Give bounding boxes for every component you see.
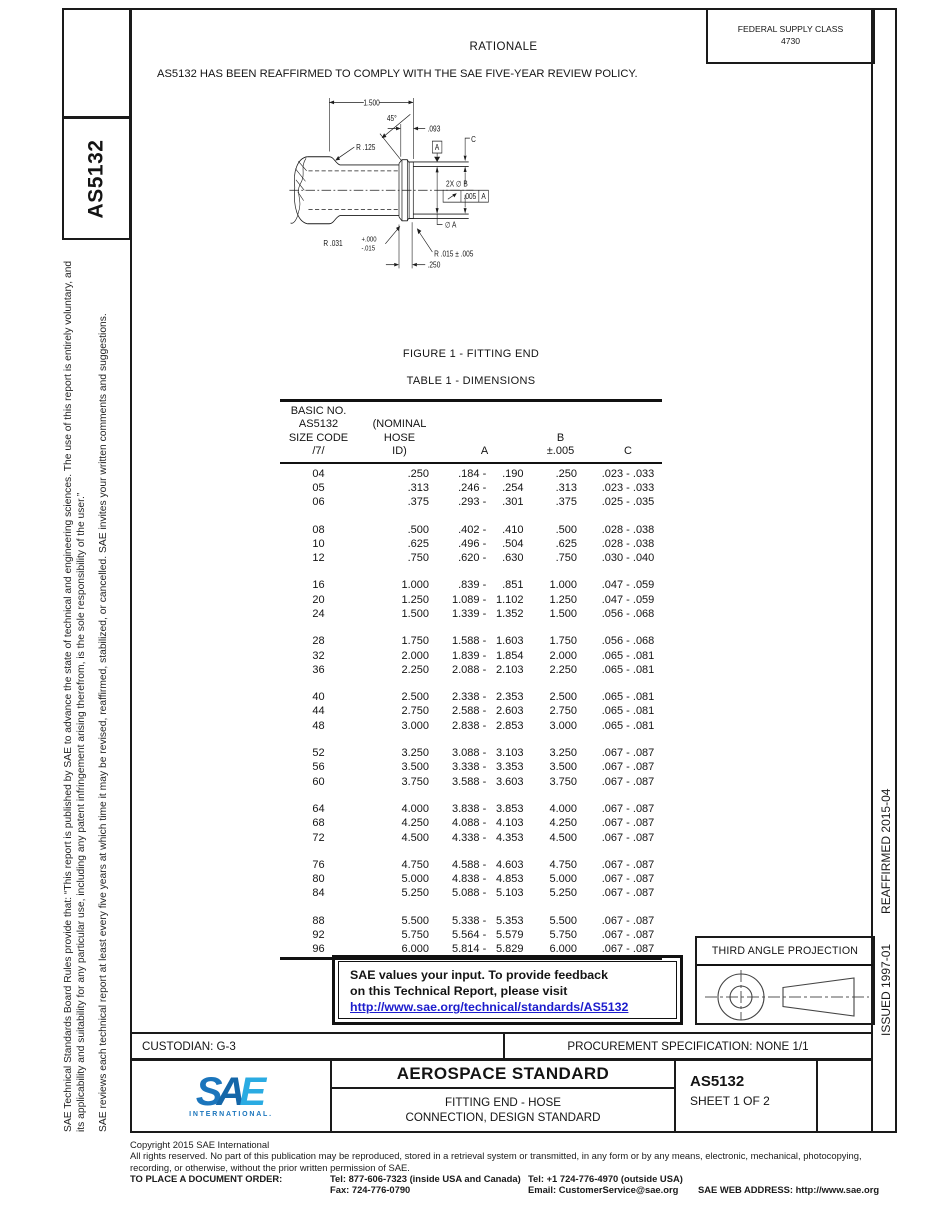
dim-c-label: C [471,134,476,144]
cell-size-code: 88 [280,914,357,928]
cell-size-code: 40 [280,690,357,704]
cell-b: 1.000 [527,578,594,592]
cell-a-range: 3.588-3.603 [442,775,527,789]
dim-250: .250 [428,260,441,270]
cell-c: .067 - .087 [594,775,662,789]
cell-hose-id: 5.500 [357,914,442,928]
cell-c: .025 - .035 [594,495,662,509]
feedback-box: SAE values your input. To provide feedba… [332,955,683,1025]
third-angle-projection-box: THIRD ANGLE PROJECTION [695,936,875,1025]
sae-logo: SAE INTERNATIONAL. [132,1061,332,1131]
cell-a-range: .184-.190 [442,463,527,481]
table-row: 241.5001.339-1.3521.500.056 - .068 [280,607,662,621]
cell-size-code: 52 [280,746,357,760]
cell-hose-id: 4.250 [357,816,442,830]
cell-hose-id: 3.250 [357,746,442,760]
cell-a-range: 2.588-2.603 [442,704,527,718]
cell-hose-id: 5.000 [357,872,442,886]
title-block: SAE INTERNATIONAL. AEROSPACE STANDARD FI… [132,1058,871,1131]
header-c: C [594,401,662,463]
cell-size-code: 72 [280,831,357,845]
table-row: 563.5003.338-3.3533.500.067 - .087 [280,760,662,774]
third-angle-projection-symbol [697,966,873,1022]
cell-size-code: 36 [280,663,357,677]
cell-b: 4.000 [527,802,594,816]
fcf-tolerance: .005 [464,191,477,201]
cell-c: .065 - .081 [594,690,662,704]
cell-size-code: 56 [280,760,357,774]
cell-b: .625 [527,537,594,551]
cell-a-range: .620-.630 [442,551,527,565]
cell-a-range: .839-.851 [442,578,527,592]
order-row-2: Fax: 724-776-0790 Email: CustomerService… [130,1184,920,1195]
document-title-line-1: FITTING END - HOSE [445,1095,561,1110]
cell-hose-id: 1.000 [357,578,442,592]
table-row: 04.250.184-.190.250.023 - .033 [280,463,662,481]
cell-size-code: 92 [280,928,357,942]
title-block-empty-cell [818,1061,871,1131]
sidebar-empty-box [62,8,131,118]
document-page: AS5132 SAE Technical Standards Board Rul… [0,0,950,1211]
cell-a-range: 3.338-3.353 [442,760,527,774]
cell-size-code: 28 [280,634,357,648]
header-a: A [442,401,527,463]
document-title: FITTING END - HOSE CONNECTION, DESIGN ST… [332,1089,674,1131]
cell-hose-id: 1.250 [357,593,442,607]
cell-b: .375 [527,495,594,509]
doc-code-box: AS5132 [62,117,131,240]
left-disclaimer-text: SAE Technical Standards Board Rules prov… [63,254,111,1132]
cell-b: .313 [527,481,594,495]
cell-a-range: 4.338-4.353 [442,831,527,845]
table-row: 845.2505.088-5.1035.250.067 - .087 [280,886,662,900]
cell-b: 1.250 [527,593,594,607]
table-row: 161.000.839-.8511.000.047 - .059 [280,578,662,592]
table-row: 08.500.402-.410.500.028 - .038 [280,523,662,537]
dim-dia-a: ∅ A [445,220,457,230]
cell-c: .028 - .038 [594,537,662,551]
cell-b: 4.750 [527,858,594,872]
cell-a-range: 4.588-4.603 [442,858,527,872]
table-row: 805.0004.838-4.8535.000.067 - .087 [280,872,662,886]
cell-c: .047 - .059 [594,593,662,607]
cell-a-range: 2.088-2.103 [442,663,527,677]
cell-hose-id: .250 [357,463,442,481]
fcf-datum: A [481,191,485,201]
cell-c: .067 - .087 [594,746,662,760]
cell-hose-id: .500 [357,523,442,537]
doc-code-vertical: AS5132 [85,139,109,218]
cell-b: 5.250 [527,886,594,900]
cell-a-range: 1.839-1.854 [442,649,527,663]
cell-size-code: 64 [280,802,357,816]
cell-c: .023 - .033 [594,481,662,495]
sheet-indicator: SHEET 1 OF 2 [690,1094,816,1108]
table-group-spacer [280,677,662,690]
table-row: 684.2504.088-4.1034.250.067 - .087 [280,816,662,830]
feedback-line-1: SAE values your input. To provide feedba… [350,967,676,983]
table-row: 06.375.293-.301.375.025 - .035 [280,495,662,509]
cell-a-range: 2.338-2.353 [442,690,527,704]
cell-hose-id: 4.500 [357,831,442,845]
table-row: 483.0002.838-2.8533.000.065 - .081 [280,719,662,733]
table-group-spacer [280,845,662,858]
feedback-link[interactable]: http://www.sae.org/technical/standards/A… [350,1000,628,1014]
cell-a-range: 2.838-2.853 [442,719,527,733]
dim-r125: R .125 [356,142,375,152]
cell-b: 5.000 [527,872,594,886]
table-row: 10.625.496-.504.625.028 - .038 [280,537,662,551]
cell-size-code: 48 [280,719,357,733]
cell-c: .067 - .087 [594,831,662,845]
dim-r031: R .031 [323,238,342,248]
cell-hose-id: .375 [357,495,442,509]
cell-size-code: 44 [280,704,357,718]
table-row: 05.313.246-.254.313.023 - .033 [280,481,662,495]
disclaimer-paragraph-1: SAE Technical Standards Board Rules prov… [63,254,88,1132]
table-row: 644.0003.838-3.8534.000.067 - .087 [280,802,662,816]
cell-a-range: 1.339-1.352 [442,607,527,621]
feedback-line-2: on this Technical Report, please visit [350,983,676,999]
cell-a-range: 4.088-4.103 [442,816,527,830]
table-row: 442.7502.588-2.6032.750.065 - .081 [280,704,662,718]
cell-size-code: 76 [280,858,357,872]
cell-b: 5.500 [527,914,594,928]
cell-b: 2.500 [527,690,594,704]
table-group-spacer [280,901,662,914]
rationale-statement: AS5132 HAS BEEN REAFFIRMED TO COMPLY WIT… [157,68,638,80]
issued-date: ISSUED 1997-01 [879,944,893,1036]
dim-dia-b: 2X ∅ B [446,179,468,189]
table-row: 322.0001.839-1.8542.000.065 - .081 [280,649,662,663]
table-group-spacer [280,565,662,578]
dim-chamfer-angle: 45° [387,113,397,123]
cell-c: .067 - .087 [594,802,662,816]
cell-hose-id: 3.750 [357,775,442,789]
cell-a-range: 3.088-3.103 [442,746,527,760]
cell-a-range: .293-.301 [442,495,527,509]
copyright-block: Copyright 2015 SAE International All rig… [130,1139,920,1195]
sae-logo-subtitle: INTERNATIONAL. [189,1111,273,1118]
cell-b: 5.750 [527,928,594,942]
cell-c: .067 - .087 [594,858,662,872]
reaffirmed-date: REAFFIRMED 2015-04 [879,789,893,914]
cell-size-code: 05 [280,481,357,495]
cell-c: .065 - .081 [594,719,662,733]
cell-size-code: 68 [280,816,357,830]
cell-a-range: 1.089-1.102 [442,593,527,607]
copyright-line: Copyright 2015 SAE International [130,1139,920,1150]
cell-b: .250 [527,463,594,481]
cell-size-code: 60 [280,775,357,789]
cell-hose-id: 1.500 [357,607,442,621]
rights-line-2: recording, or otherwise, without the pri… [130,1162,920,1173]
dim-overall-length: 1.500 [363,98,379,108]
dim-r015: R .015 ± .005 [434,249,473,259]
cell-c: .067 - .087 [594,872,662,886]
cell-c: .067 - .087 [594,886,662,900]
table-group-spacer [280,789,662,802]
cell-hose-id: 3.500 [357,760,442,774]
fax-number: Fax: 724-776-0790 [330,1184,410,1195]
table-row: 362.2502.088-2.1032.250.065 - .081 [280,663,662,677]
header-size-code: BASIC NO. AS5132 SIZE CODE /7/ [280,401,357,463]
tel-inside: Tel: 877-606-7323 (inside USA and Canada… [330,1173,521,1184]
cell-size-code: 16 [280,578,357,592]
main-content-frame: FEDERAL SUPPLY CLASS 4730 RATIONALE AS51… [130,8,873,1133]
table-row: 724.5004.338-4.3534.500.067 - .087 [280,831,662,845]
document-number-cell: AS5132 SHEET 1 OF 2 [676,1061,818,1131]
document-title-line-2: CONNECTION, DESIGN STANDARD [406,1110,601,1125]
cell-hose-id: 4.750 [357,858,442,872]
table-row: 885.5005.338-5.3535.500.067 - .087 [280,914,662,928]
cell-b: .750 [527,551,594,565]
table-row: 925.7505.564-5.5795.750.067 - .087 [280,928,662,942]
fitting-end-drawing: 1.500 45° .093 R .125 A C 2X ∅ B .005 A … [287,92,707,354]
cell-size-code: 80 [280,872,357,886]
document-number: AS5132 [690,1073,816,1090]
dim-r031-minus: -.015 [361,245,375,253]
cell-b: 2.000 [527,649,594,663]
cell-a-range: .402-.410 [442,523,527,537]
cell-a-range: 5.564-5.579 [442,928,527,942]
document-type: AEROSPACE STANDARD [332,1061,674,1089]
cell-a-range: 5.338-5.353 [442,914,527,928]
cell-size-code: 32 [280,649,357,663]
cell-c: .030 - .040 [594,551,662,565]
cell-c: .067 - .087 [594,928,662,942]
web-address: SAE WEB ADDRESS: http://www.sae.org [698,1184,879,1195]
cell-hose-id: 2.500 [357,690,442,704]
cell-hose-id: 5.250 [357,886,442,900]
cell-c: .067 - .087 [594,816,662,830]
procurement-cell: PROCUREMENT SPECIFICATION: NONE 1/1 [505,1034,871,1058]
cell-b: 3.000 [527,719,594,733]
disclaimer-paragraph-2: SAE reviews each technical report at lea… [98,254,111,1132]
header-hose-id: (NOMINAL HOSE ID) [357,401,442,463]
cell-c: .028 - .038 [594,523,662,537]
federal-supply-class-box: FEDERAL SUPPLY CLASS 4730 [706,8,875,64]
table-row: 523.2503.088-3.1033.250.067 - .087 [280,746,662,760]
feedback-box-inner: SAE values your input. To provide feedba… [338,961,677,1019]
cell-c: .023 - .033 [594,463,662,481]
cell-b: 1.750 [527,634,594,648]
cell-size-code: 04 [280,463,357,481]
cell-hose-id: 5.750 [357,928,442,942]
cell-size-code: 06 [280,495,357,509]
federal-supply-class-label: FEDERAL SUPPLY CLASS [738,23,843,35]
table-group-spacer [280,733,662,746]
cell-a-range: .496-.504 [442,537,527,551]
cell-hose-id: .625 [357,537,442,551]
cell-hose-id: .313 [357,481,442,495]
dimensions-table: BASIC NO. AS5132 SIZE CODE /7/ (NOMINAL … [280,399,662,960]
cell-b: 3.250 [527,746,594,760]
cell-c: .056 - .068 [594,607,662,621]
cell-hose-id: 1.750 [357,634,442,648]
cell-size-code: 12 [280,551,357,565]
order-label: TO PLACE A DOCUMENT ORDER: [130,1173,282,1184]
cell-b: 3.750 [527,775,594,789]
cell-c: .047 - .059 [594,578,662,592]
cell-a-range: 1.588-1.603 [442,634,527,648]
table-caption: TABLE 1 - DIMENSIONS [280,375,662,387]
cell-c: .065 - .081 [594,704,662,718]
cell-size-code: 84 [280,886,357,900]
custodian-cell: CUSTODIAN: G-3 [132,1034,505,1058]
cell-a-range: .246-.254 [442,481,527,495]
cell-hose-id: 2.000 [357,649,442,663]
cell-c: .065 - .081 [594,649,662,663]
cell-hose-id: 2.250 [357,663,442,677]
dim-093: .093 [428,124,441,134]
table-row: 603.7503.588-3.6033.750.067 - .087 [280,775,662,789]
cell-size-code: 20 [280,593,357,607]
third-angle-projection-title: THIRD ANGLE PROJECTION [697,938,873,966]
table-group-spacer [280,510,662,523]
cell-b: 3.500 [527,760,594,774]
table-row: 402.5002.338-2.3532.500.065 - .081 [280,690,662,704]
figure-caption: FIGURE 1 - FITTING END [280,348,662,360]
cell-hose-id: 3.000 [357,719,442,733]
cell-b: .500 [527,523,594,537]
cell-c: .067 - .087 [594,760,662,774]
cell-hose-id: 4.000 [357,802,442,816]
email-address: Email: CustomerService@sae.org [528,1184,678,1195]
table-row: 281.7501.588-1.6031.750.056 - .068 [280,634,662,648]
cell-hose-id: 2.750 [357,704,442,718]
cell-a-range: 5.088-5.103 [442,886,527,900]
custodian-row: CUSTODIAN: G-3 PROCUREMENT SPECIFICATION… [132,1032,871,1058]
rights-line-1: All rights reserved. No part of this pub… [130,1150,920,1161]
cell-size-code: 24 [280,607,357,621]
sae-logo-letters: SAE [196,1075,266,1109]
cell-b: 4.500 [527,831,594,845]
cell-b: 2.750 [527,704,594,718]
table-group-spacer [280,621,662,634]
cell-c: .065 - .081 [594,663,662,677]
rationale-heading: RATIONALE [132,41,875,53]
cell-c: .067 - .087 [594,914,662,928]
cell-size-code: 10 [280,537,357,551]
header-b: B ±.005 [527,401,594,463]
cell-hose-id: .750 [357,551,442,565]
datum-a-flag: A [435,142,439,152]
revision-strip-text: ISSUED 1997-01REAFFIRMED 2015-04 [879,789,893,1036]
table-row: 764.7504.588-4.6034.750.067 - .087 [280,858,662,872]
cell-b: 1.500 [527,607,594,621]
cell-b: 2.250 [527,663,594,677]
order-row-1: TO PLACE A DOCUMENT ORDER: Tel: 877-606-… [130,1173,920,1184]
dim-r031-plus: +.000 [361,236,376,244]
cell-size-code: 08 [280,523,357,537]
table-row: 201.2501.089-1.1021.250.047 - .059 [280,593,662,607]
table-row: 12.750.620-.630.750.030 - .040 [280,551,662,565]
dimensions-table-body: 04.250.184-.190.250.023 - .03305.313.246… [280,463,662,959]
document-type-cell: AEROSPACE STANDARD FITTING END - HOSE CO… [332,1061,676,1131]
cell-a-range: 3.838-3.853 [442,802,527,816]
cell-a-range: 4.838-4.853 [442,872,527,886]
tel-outside: Tel: +1 724-776-4970 (outside USA) [528,1173,683,1184]
cell-c: .056 - .068 [594,634,662,648]
cell-b: 4.250 [527,816,594,830]
